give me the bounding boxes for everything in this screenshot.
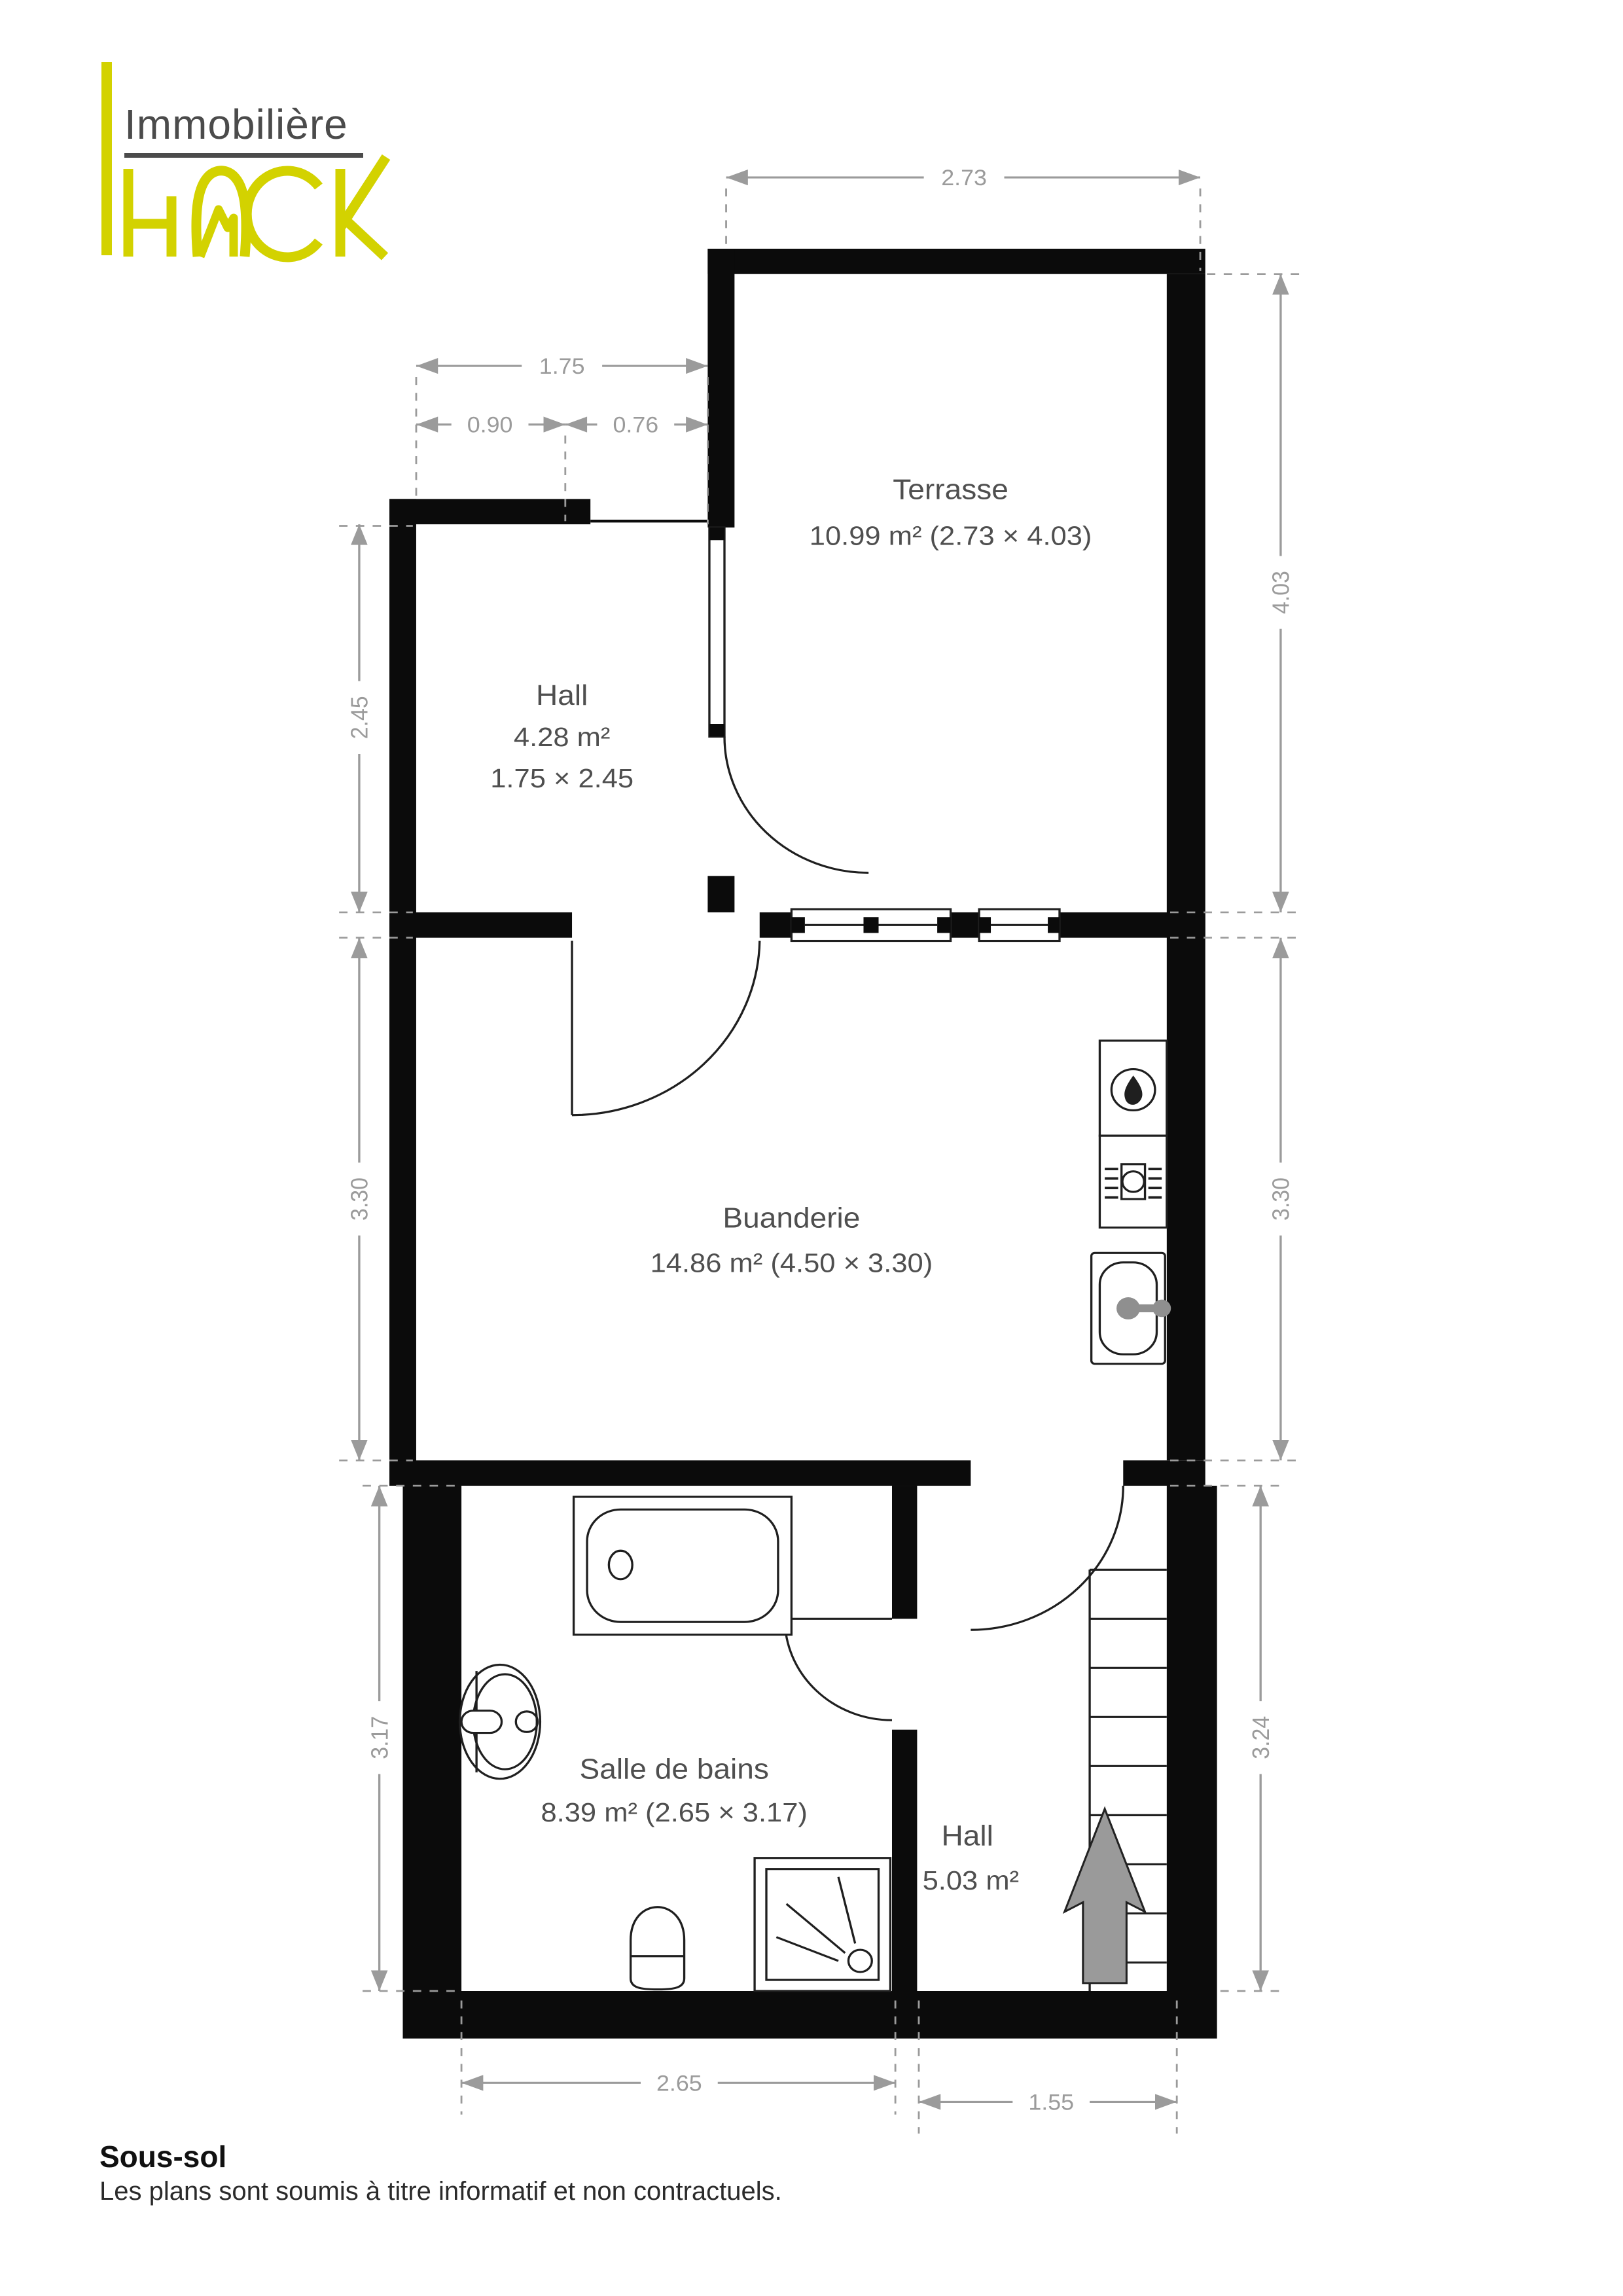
logo-letter-c [247,171,319,257]
terrace-door [709,528,868,873]
room-buanderie-name: Buanderie [722,1202,860,1234]
dim-bathroom-left: 3.17 [367,1716,393,1759]
window-large [791,909,950,941]
room-hall-lower-name: Hall [942,1820,993,1852]
brand-letter-k-text: K [0,0,1,1]
room-bathroom-details: 8.39 m² (2.65 × 3.17) [541,1797,807,1827]
room-hall-lower-area: 5.03 m² [923,1865,1019,1895]
logo-line1: Immobilière [124,101,348,148]
room-labels: Terrasse 10.99 m² (2.73 × 4.03) Hall 4.2… [490,473,1092,1895]
logo-house-a-glyph [196,171,246,257]
floorplan-canvas: Immobilière [0,0,1623,2296]
dim-hall-top-left: 0.90 [467,413,513,438]
room-hall-upper-size: 1.75 × 2.45 [490,763,633,793]
up-arrow-icon [1065,1809,1145,1983]
room-terrasse-name: Terrasse [893,473,1008,506]
dim-hall-lower-right: 3.24 [1248,1716,1274,1759]
bathtub [574,1497,792,1635]
brand-letter-c-text: C [0,0,1,1]
logo: Immobilière [101,62,386,257]
dim-terrace-right: 4.03 [1268,571,1294,614]
dim-terrace-width: 2.73 [941,166,987,190]
disclaimer-text: Les plans sont soumis à titre informatif… [99,2177,782,2206]
room-terrasse-details: 10.99 m² (2.73 × 4.03) [810,521,1092,551]
logo-letter-k [340,157,386,257]
laundry-sink [1092,1253,1171,1363]
shower [755,1858,890,1991]
logo-underline [124,153,363,158]
room-bathroom-name: Salle de bains [579,1753,768,1785]
floor-title: Sous-sol [99,2139,226,2174]
washing-machine-icon [1099,1136,1166,1227]
room-buanderie-details: 14.86 m² (4.50 × 3.30) [651,1247,933,1278]
dim-bathroom-bottom: 2.65 [656,2071,702,2096]
dim-hall-lower-bottom: 1.55 [1028,2090,1074,2115]
window-small [979,909,1060,941]
dim-hall-top-total: 1.75 [539,354,585,379]
room-hall-upper-name: Hall [536,679,588,711]
boiler-flame-icon [1099,1041,1166,1136]
floorplan: Terrasse 10.99 m² (2.73 × 4.03) Hall 4.2… [339,166,1300,2134]
dim-buanderie-right: 3.30 [1268,1177,1294,1221]
door-buanderie-hall [971,1486,1123,1630]
stairs [1065,1570,1167,1991]
door-bathroom [785,1619,892,1720]
door-hall-buanderie [572,941,760,1115]
logo-brand [128,157,386,257]
brand-text-data: H C K [0,0,1,1]
logo-letter-h [128,169,171,257]
dim-hall-left: 2.45 [347,696,373,739]
washbasin [460,1664,541,1778]
room-hall-upper-area: 4.28 m² [514,722,610,752]
dim-buanderie-left: 3.30 [347,1177,373,1221]
logo-bar [101,62,112,255]
toilet [631,1907,685,1990]
dim-hall-top-right: 0.76 [613,413,658,438]
brand-letter-h-text: H [0,0,1,1]
